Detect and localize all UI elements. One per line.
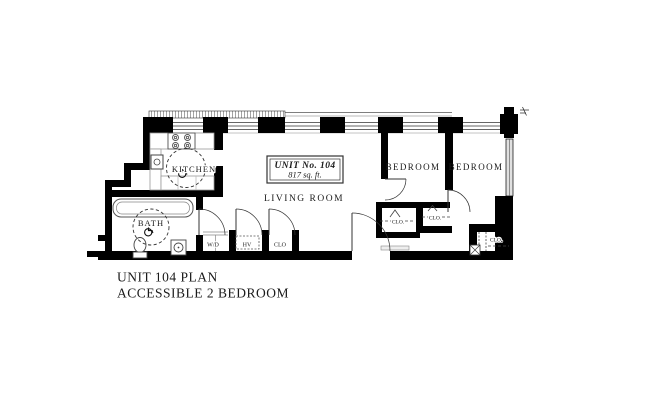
hall-closet-label: CLO [274, 243, 287, 249]
stove [168, 133, 195, 149]
survey-mark [520, 107, 529, 116]
bedroom1-label: BEDROOM [386, 162, 441, 172]
hvac-label: HV [243, 243, 252, 249]
unit-area-label: 817 sq. ft. [288, 170, 322, 180]
bathtub [113, 199, 193, 217]
plan-subtitle: ACCESSIBLE 2 BEDROOM [117, 286, 289, 301]
living-room-label: LIVING ROOM [264, 194, 344, 204]
bath-label: BATH [138, 218, 164, 228]
bedroom1-closet-b-label: CLO. [429, 216, 442, 222]
bedroom2-label: BEDROOM [449, 162, 504, 172]
floor-plan: KITCHEN BATH LIVING ROOM BEDROOM BEDROOM… [0, 0, 652, 416]
kitchen-sink [151, 155, 163, 169]
bedroom1-closet-a-label: CLO. [392, 220, 405, 226]
bedroom2-closet-label: CLO. [490, 238, 503, 244]
kitchen-label: KITCHEN [172, 164, 216, 174]
duct-chase [470, 245, 480, 255]
washer-dryer-label: W/D [207, 243, 219, 249]
plan-title: UNIT 104 PLAN [117, 270, 218, 285]
floor-plan-page: KITCHEN BATH LIVING ROOM BEDROOM BEDROOM… [0, 0, 652, 416]
bath-sink [171, 240, 186, 255]
toilet [133, 238, 147, 259]
entry-threshold [381, 246, 409, 250]
right-window [506, 139, 513, 196]
facade-ledge [149, 111, 452, 118]
